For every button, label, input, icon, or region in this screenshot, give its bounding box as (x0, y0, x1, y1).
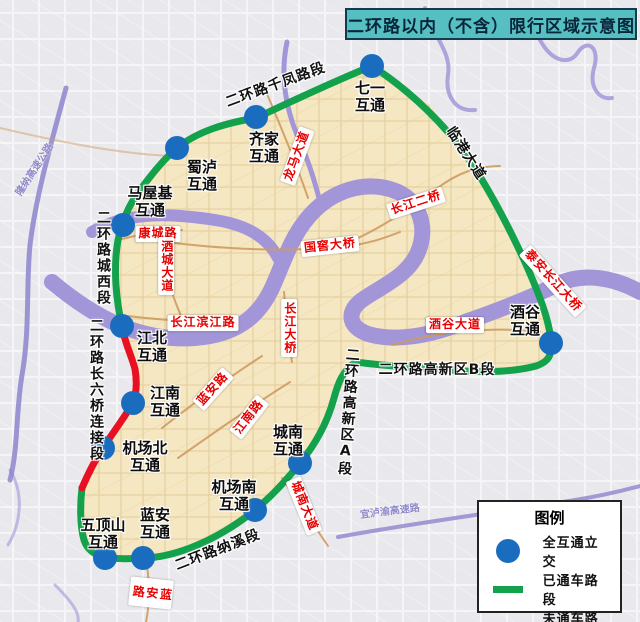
dot-mawuji (111, 213, 135, 237)
restricted-area-map: 七一 互通 齐家 互通 蜀泸 互通 马屋基 互通 江北 互通 江南 互通 机场北… (0, 0, 640, 622)
dot-shulu (165, 136, 189, 160)
legend-item-interchange: 全互通立交 (487, 532, 612, 570)
dot-qiyi (360, 54, 384, 78)
dot-lanan (131, 546, 155, 570)
legend: 图例 全互通立交 已通车路段 未通车路段 (477, 500, 622, 613)
dot-jiugu (539, 331, 563, 355)
dot-jiangbei (110, 314, 134, 338)
dot-chengnan (288, 451, 312, 475)
blue-dot-icon (496, 539, 520, 563)
legend-title: 图例 (487, 507, 612, 528)
dot-wudingshan (93, 546, 117, 570)
legend-item-open-road: 已通车路段 (487, 570, 612, 608)
dot-jichangbei (91, 436, 115, 460)
map-title: 二环路以内（不含）限行区域示意图 (345, 8, 637, 40)
legend-label-closed-road: 未通车路段 (543, 608, 612, 622)
legend-label-open-road: 已通车路段 (543, 570, 612, 608)
dot-jiangnan (121, 391, 145, 415)
dot-jichangnan (243, 498, 267, 522)
green-line-icon (493, 586, 523, 593)
legend-label-interchange: 全互通立交 (543, 532, 612, 570)
dot-qijia (244, 105, 268, 129)
legend-item-closed-road: 未通车路段 (487, 608, 612, 622)
